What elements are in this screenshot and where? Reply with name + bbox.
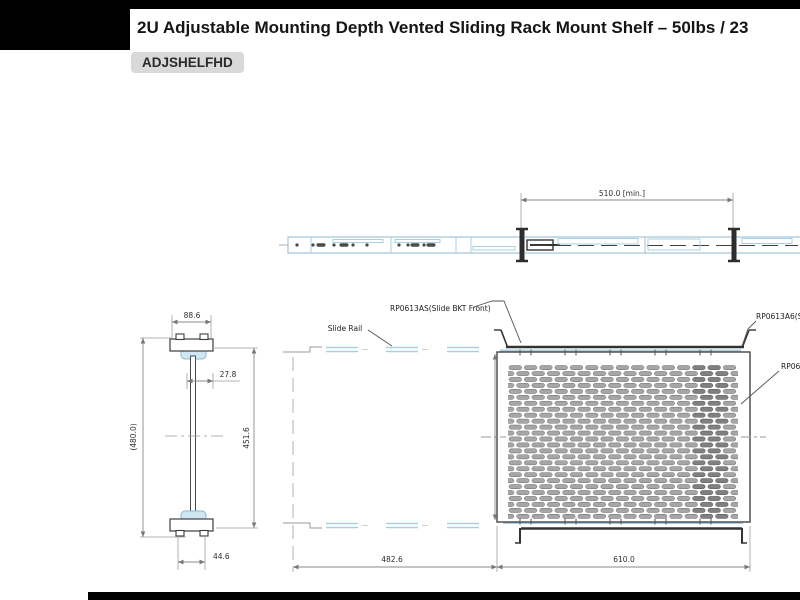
dim-inner-depth: 451.6 bbox=[242, 427, 251, 449]
technical-drawing: 510.0 [min.] bbox=[0, 0, 800, 600]
dim-overall-depth: (480.0) bbox=[129, 423, 138, 450]
dim-rail-span: 482.6 bbox=[381, 555, 403, 564]
label-slide-bkt-rear: RP0613A6(Sli bbox=[756, 312, 800, 321]
dim-bracket-width: 88.6 bbox=[184, 311, 201, 320]
label-slide-rail: Slide Rail bbox=[328, 324, 363, 333]
page: 2U Adjustable Mounting Depth Vented Slid… bbox=[0, 0, 800, 600]
bottom-matte-bar bbox=[88, 592, 800, 600]
dim-shelf-width: 610.0 bbox=[613, 555, 635, 564]
topleft-matte-block bbox=[0, 0, 130, 50]
shelf-plan-view: 482.6 610.0 bbox=[283, 330, 766, 572]
dim-rail-offset: 27.8 bbox=[220, 370, 237, 379]
label-shelf-part: RP061 bbox=[781, 362, 800, 371]
dim-foot-width: 44.6 bbox=[213, 552, 230, 561]
slide-rail-side-view: 510.0 [min.] bbox=[279, 189, 800, 262]
dim-rail-min-extension: 510.0 [min.] bbox=[599, 189, 645, 198]
shelf-end-view: 88.6 27.8 (480.0) 451.6 bbox=[129, 311, 258, 570]
label-slide-bkt-front: RP0613AS(Slide BKT Front) bbox=[390, 304, 491, 313]
